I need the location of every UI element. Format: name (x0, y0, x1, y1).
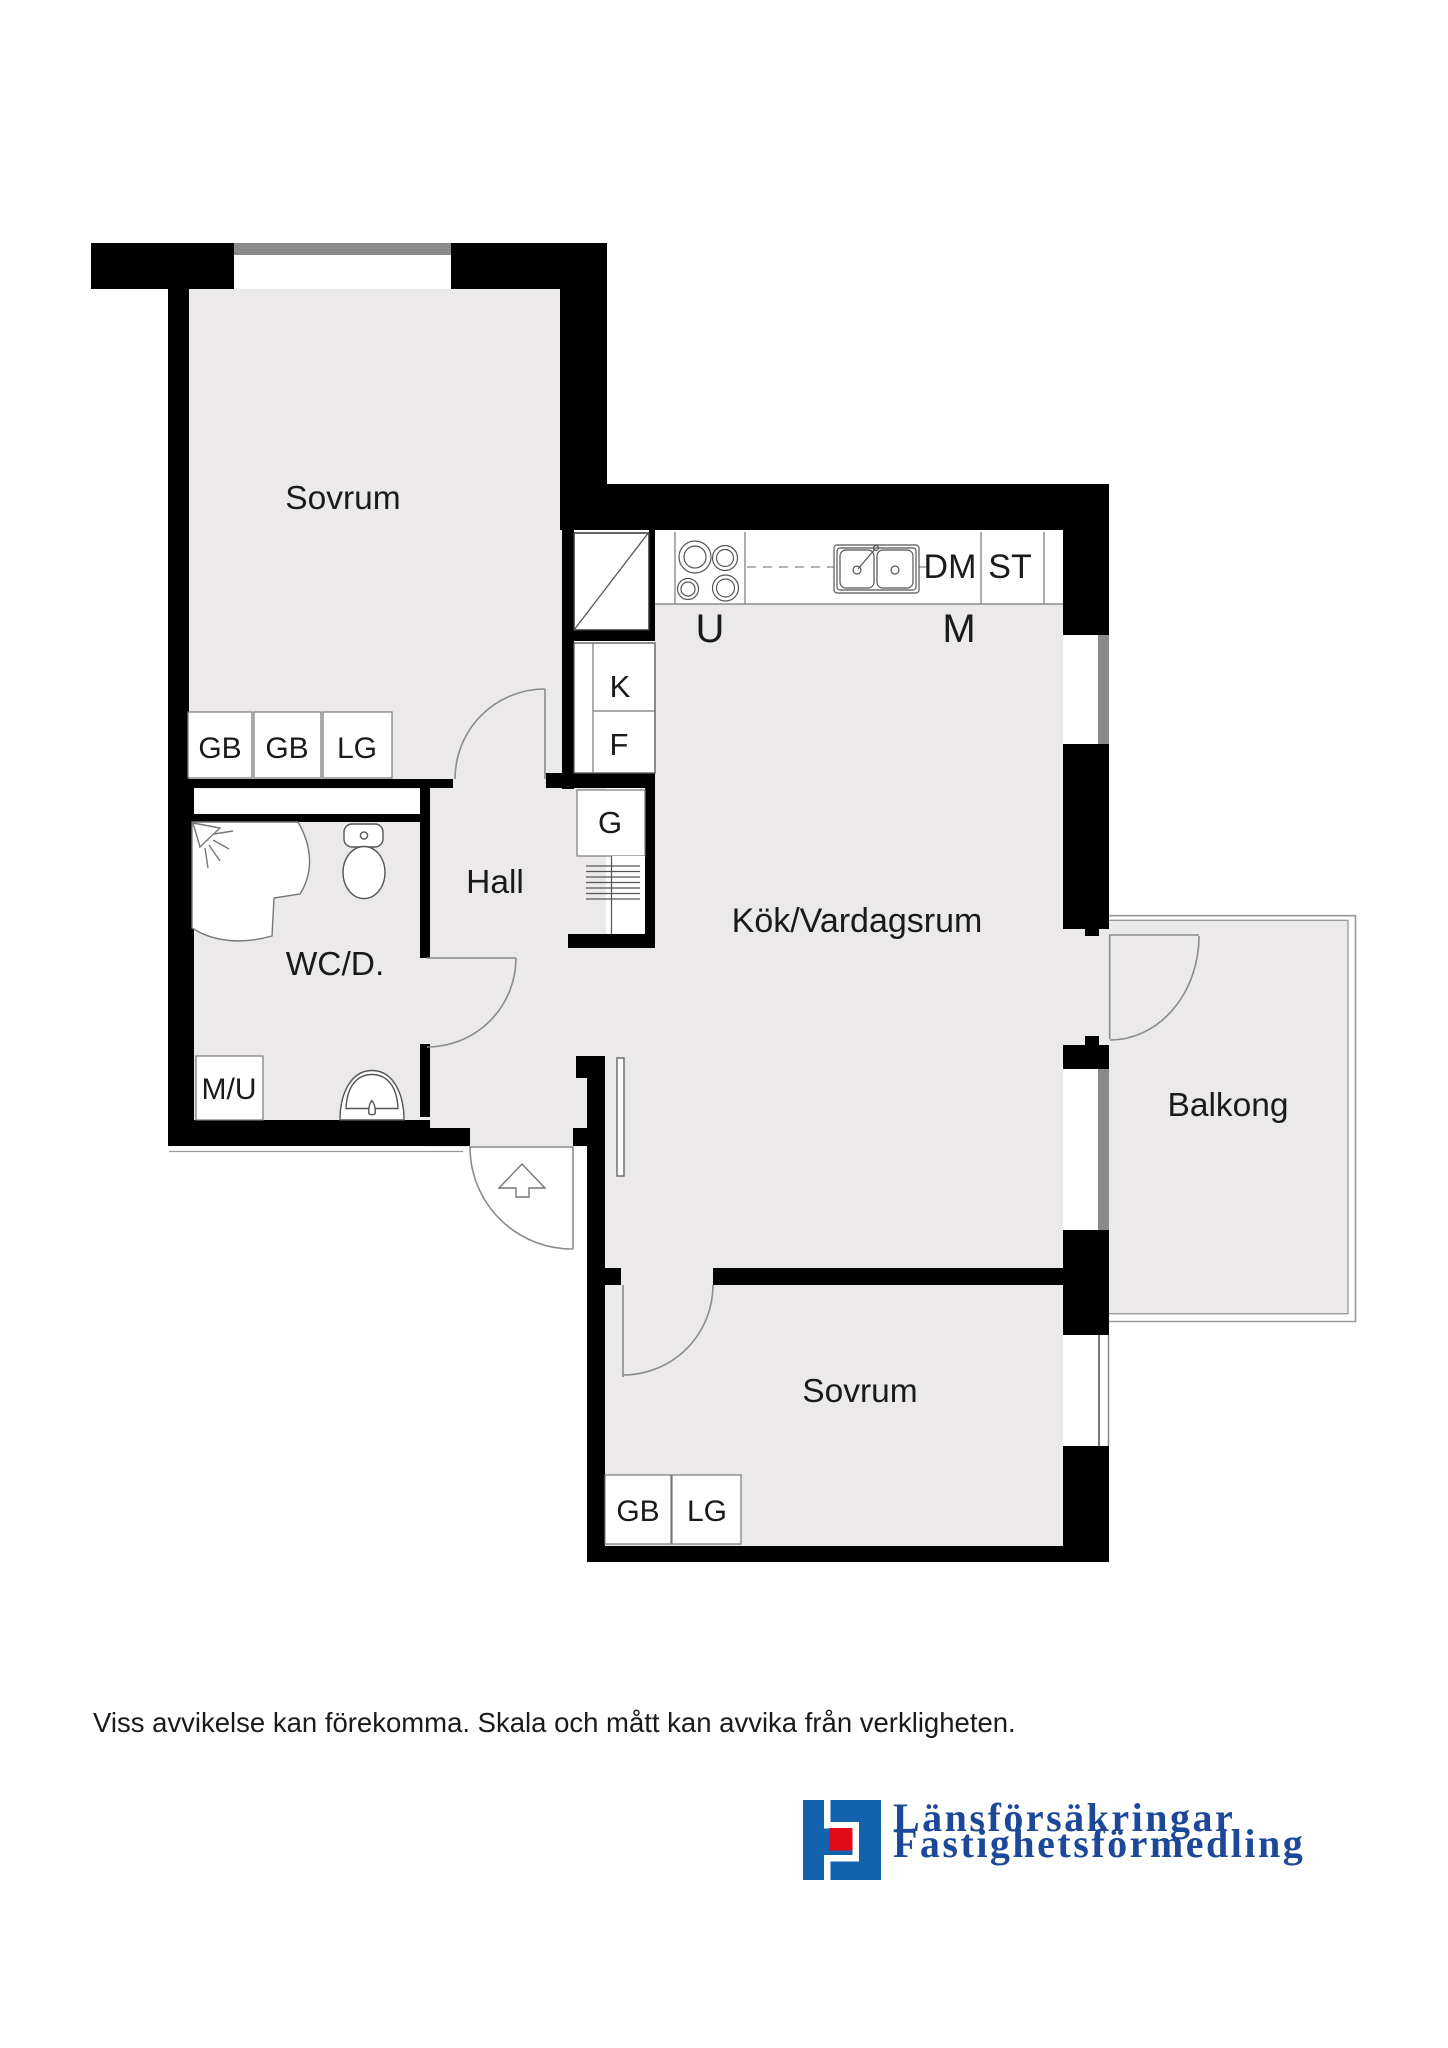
svg-text:M/U: M/U (202, 1073, 257, 1106)
svg-text:WC/D.: WC/D. (286, 946, 385, 983)
svg-text:ST: ST (988, 548, 1031, 586)
svg-text:Kök/Vardagsrum: Kök/Vardagsrum (732, 902, 983, 940)
svg-text:U: U (696, 607, 725, 651)
svg-text:LG: LG (337, 732, 377, 765)
svg-text:F: F (610, 727, 629, 762)
svg-text:Sovrum: Sovrum (285, 480, 400, 517)
svg-text:Balkong: Balkong (1167, 1087, 1288, 1124)
svg-text:DM: DM (924, 548, 977, 586)
svg-text:LG: LG (687, 1495, 727, 1528)
svg-text:G: G (598, 805, 622, 840)
svg-text:K: K (610, 669, 631, 704)
svg-text:Hall: Hall (466, 864, 524, 901)
svg-text:M: M (942, 607, 975, 651)
svg-text:Sovrum: Sovrum (802, 1373, 917, 1410)
svg-text:GB: GB (265, 732, 308, 765)
svg-text:GB: GB (616, 1495, 659, 1528)
svg-text:Viss avvikelse kan förekomma.: Viss avvikelse kan förekomma. Skala och … (93, 1707, 1016, 1738)
svg-text:GB: GB (198, 732, 241, 765)
svg-text:Fastighetsförmedling: Fastighetsförmedling (893, 1821, 1305, 1866)
